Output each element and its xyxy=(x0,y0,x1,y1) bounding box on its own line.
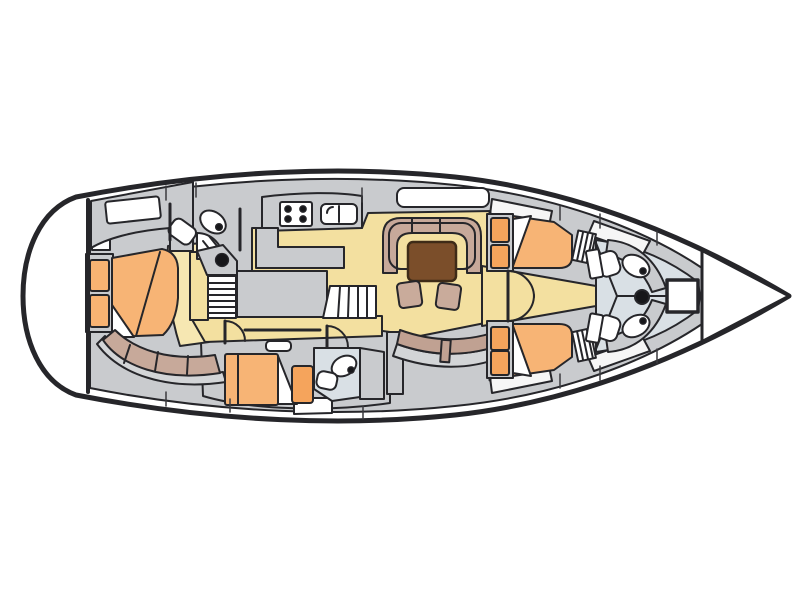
burner-dot xyxy=(285,216,291,222)
seat-cushion xyxy=(491,327,509,350)
saloon-table xyxy=(408,242,456,281)
seat-cushion xyxy=(491,245,509,268)
toilet-flush-dot xyxy=(348,367,354,373)
shelf-cushion-top xyxy=(90,260,109,291)
mast-dot xyxy=(635,290,649,304)
foredeck xyxy=(702,251,788,341)
guest-berth xyxy=(225,354,278,405)
stool xyxy=(396,281,422,309)
seat-cushion xyxy=(491,218,509,242)
aft-cabin-window xyxy=(105,196,161,224)
saloon-skylight xyxy=(397,188,489,207)
yacht-deck-plan xyxy=(0,0,800,600)
stool xyxy=(435,282,461,310)
round-basin-icon xyxy=(216,254,229,267)
burner-dot xyxy=(300,206,306,212)
guest-seat xyxy=(292,366,313,403)
head-side-wall xyxy=(360,348,384,399)
deck-plan-canvas xyxy=(0,0,800,600)
bow-hatch xyxy=(667,280,698,312)
sink-icon xyxy=(315,370,338,391)
stove-icon xyxy=(280,202,312,226)
bench-armrest xyxy=(440,340,451,363)
shelf-cushion-bottom xyxy=(90,295,109,327)
galley-island xyxy=(237,271,327,317)
burner-dot xyxy=(300,216,306,222)
toilet-flush-dot xyxy=(640,268,646,274)
toilet-flush-dot xyxy=(640,318,646,324)
burner-dot xyxy=(285,206,291,212)
toilet-flush-dot xyxy=(216,224,223,231)
seat-cushion xyxy=(491,351,509,375)
step-pad xyxy=(266,341,291,351)
